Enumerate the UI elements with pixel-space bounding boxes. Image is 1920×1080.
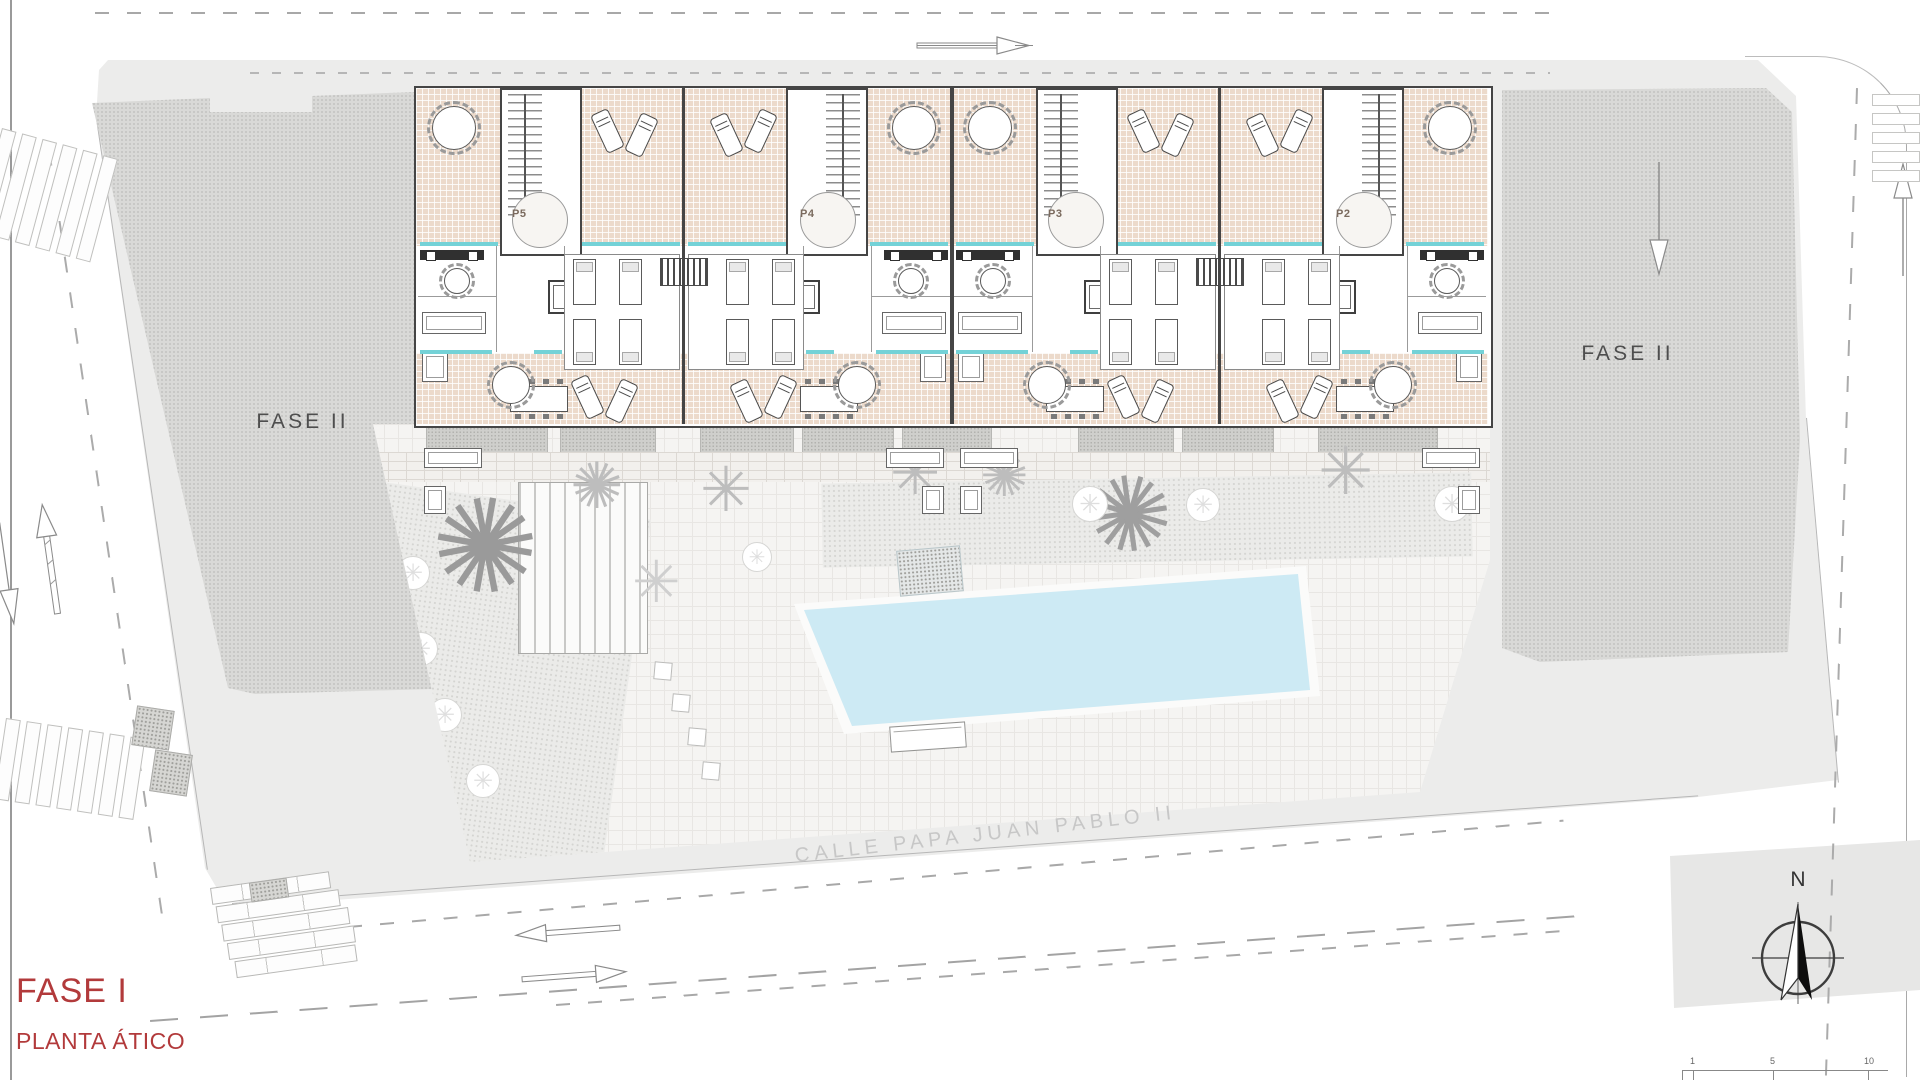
wardrobe-icon: [684, 258, 708, 286]
scale-tick-label: 1: [1690, 1056, 1695, 1066]
terrace-table-icon: [968, 106, 1012, 150]
phase-title: FASE I: [16, 972, 128, 1011]
wardrobe-icon: [1196, 258, 1220, 286]
scale-tick-label: 5: [1770, 1056, 1775, 1066]
scale-bar-tick: [1693, 1070, 1694, 1080]
sofa-icon: [424, 486, 446, 514]
party-wall: [1218, 88, 1221, 424]
hedge: [1078, 426, 1174, 454]
bench: [889, 721, 967, 752]
window-band: [1342, 350, 1370, 354]
interior-wall: [872, 296, 950, 297]
bed-icon: [1308, 259, 1331, 305]
window-band: [582, 242, 680, 246]
party-wall: [682, 88, 685, 424]
window-band: [534, 350, 562, 354]
traffic-arrow-left-icon: [511, 916, 624, 948]
bed-icon: [1109, 319, 1132, 365]
sofa-icon: [1418, 312, 1482, 334]
sofa-icon: [922, 486, 944, 514]
window-band: [420, 350, 492, 354]
wardrobe-icon: [1220, 258, 1244, 286]
window-band: [956, 242, 1034, 246]
traffic-arrow-up-icon: [28, 498, 74, 621]
unit-label: P5: [512, 208, 526, 220]
compass-rose-icon: [1748, 880, 1848, 1010]
boundary-dashed-inner: [250, 72, 1550, 74]
street-edge-dashed-south: [556, 930, 1563, 1006]
stair-drum: [1336, 192, 1392, 248]
scale-bar-tick: [1682, 1070, 1683, 1080]
window-band: [806, 350, 834, 354]
street-centerline: [150, 915, 1576, 1022]
apartment-unit-p5: P5: [416, 88, 684, 424]
breakfast-table-icon: [980, 268, 1006, 294]
breakfast-table-icon: [444, 268, 470, 294]
window-band: [1070, 350, 1098, 354]
sofa-icon: [422, 352, 448, 382]
bed-icon: [1155, 259, 1178, 305]
party-wall: [950, 88, 954, 424]
bed-icon: [1155, 319, 1178, 365]
scale-tick-label: 10: [1864, 1056, 1874, 1066]
window-band: [420, 242, 498, 246]
hedge: [802, 426, 894, 454]
stair-drum: [1048, 192, 1104, 248]
stairwell: [1322, 88, 1404, 256]
spa-pad: [896, 545, 964, 596]
palm-tree-icon: ✳✳: [570, 454, 624, 518]
kitchen-counter-icon: [420, 250, 484, 260]
palm-tree-icon: ✳: [700, 460, 752, 522]
wardrobe-icon: [660, 258, 684, 286]
window-band: [1224, 242, 1322, 246]
zebra-crossing: [0, 718, 145, 820]
traffic-arrow-right-icon: [915, 34, 1035, 58]
crosswalk-right: [1872, 94, 1920, 182]
bed-icon: [619, 319, 642, 365]
sofa-icon: [958, 312, 1022, 334]
sofa-icon: [886, 448, 944, 468]
shrub-icon: ✳: [742, 542, 772, 572]
kitchen-counter-icon: [884, 250, 948, 260]
apartment-unit-p2: P2: [1220, 88, 1488, 424]
bed-icon: [619, 259, 642, 305]
interior-wall: [1408, 296, 1486, 297]
terrace-table-icon: [1028, 366, 1066, 404]
hedge: [700, 426, 794, 454]
fase2-left-label: FASE II: [255, 410, 350, 434]
planting-pad: [149, 749, 193, 796]
bed-icon: [726, 259, 749, 305]
boundary-dashed-top: [95, 12, 1555, 14]
bed-icon: [1262, 319, 1285, 365]
terrace-table-icon: [1374, 366, 1412, 404]
sofa-icon: [958, 352, 984, 382]
terrace-table-icon: [432, 106, 476, 150]
interior-wall: [496, 246, 497, 352]
scale-bar-tick: [1773, 1070, 1774, 1080]
sofa-icon: [960, 486, 982, 514]
interior-wall: [1032, 246, 1033, 352]
window-band: [870, 242, 948, 246]
planting-pad: [131, 705, 174, 750]
bed-icon: [726, 319, 749, 365]
fase2-right-label: FASE II: [1580, 342, 1675, 366]
interior-wall: [954, 296, 1032, 297]
bed-icon: [1262, 259, 1285, 305]
sofa-icon: [1458, 486, 1480, 514]
stairwell: [786, 88, 868, 256]
terrace-table-icon: [1428, 106, 1472, 150]
unit-label: P4: [800, 208, 814, 220]
traffic-arrow-down-icon: [1646, 160, 1672, 280]
scale-bar: 1 5 10: [1678, 1056, 1898, 1080]
palm-tree-icon: ✳: [632, 554, 681, 612]
terrace-table-icon: [492, 366, 530, 404]
site-plan-canvas: FASE II FASE II ✳✳ ✳ ✳ ✳: [0, 0, 1920, 1080]
stepping-stone: [653, 661, 673, 681]
shrub-icon: ✳: [1072, 486, 1108, 522]
fase1-building: P5: [414, 86, 1493, 428]
breakfast-table-icon: [1434, 268, 1460, 294]
terrace-table-icon: [838, 366, 876, 404]
scale-bar-line: [1682, 1070, 1888, 1071]
terrace-table-icon: [892, 106, 936, 150]
window-band: [1118, 242, 1216, 246]
stairwell: [1036, 88, 1118, 256]
bed-icon: [573, 259, 596, 305]
sofa-icon: [424, 448, 482, 468]
window-band: [1406, 242, 1484, 246]
sofa-icon: [422, 312, 486, 334]
window-band: [876, 350, 948, 354]
traffic-arrow-down-icon: [0, 518, 30, 631]
sofa-icon: [960, 448, 1018, 468]
palm-tree-icon: ✳: [1318, 438, 1373, 504]
bed-icon: [772, 319, 795, 365]
kitchen-counter-icon: [956, 250, 1020, 260]
sofa-icon: [882, 312, 946, 334]
stair-drum: [512, 192, 568, 248]
unit-label: P2: [1336, 208, 1350, 220]
bed-icon: [573, 319, 596, 365]
sofa-icon: [1422, 448, 1480, 468]
apartment-unit-p3: P3: [952, 88, 1220, 424]
interior-wall: [1407, 246, 1408, 352]
bed-icon: [1109, 259, 1132, 305]
breakfast-table-icon: [898, 268, 924, 294]
sofa-icon: [920, 352, 946, 382]
stairwell: [500, 88, 582, 256]
scale-bar-tick: [1868, 1070, 1869, 1080]
unit-label: P3: [1048, 208, 1062, 220]
stepping-stone: [687, 727, 707, 747]
stepping-stone: [671, 693, 691, 713]
shrub-icon: ✳: [1186, 488, 1220, 522]
interior-wall: [418, 296, 496, 297]
bed-icon: [772, 259, 795, 305]
stair-drum: [800, 192, 856, 248]
window-band: [956, 350, 1028, 354]
hedge: [1182, 426, 1274, 454]
interior-wall: [871, 246, 872, 352]
kitchen-counter-icon: [1420, 250, 1484, 260]
apartment-unit-p4: P4: [684, 88, 952, 424]
bed-icon: [1308, 319, 1331, 365]
shrub-icon: ✳: [466, 764, 500, 798]
floor-title: PLANTA ÁTICO: [16, 1028, 185, 1055]
window-band: [1412, 350, 1484, 354]
stepping-stone: [701, 761, 721, 781]
sofa-icon: [1456, 352, 1482, 382]
window-band: [688, 242, 786, 246]
